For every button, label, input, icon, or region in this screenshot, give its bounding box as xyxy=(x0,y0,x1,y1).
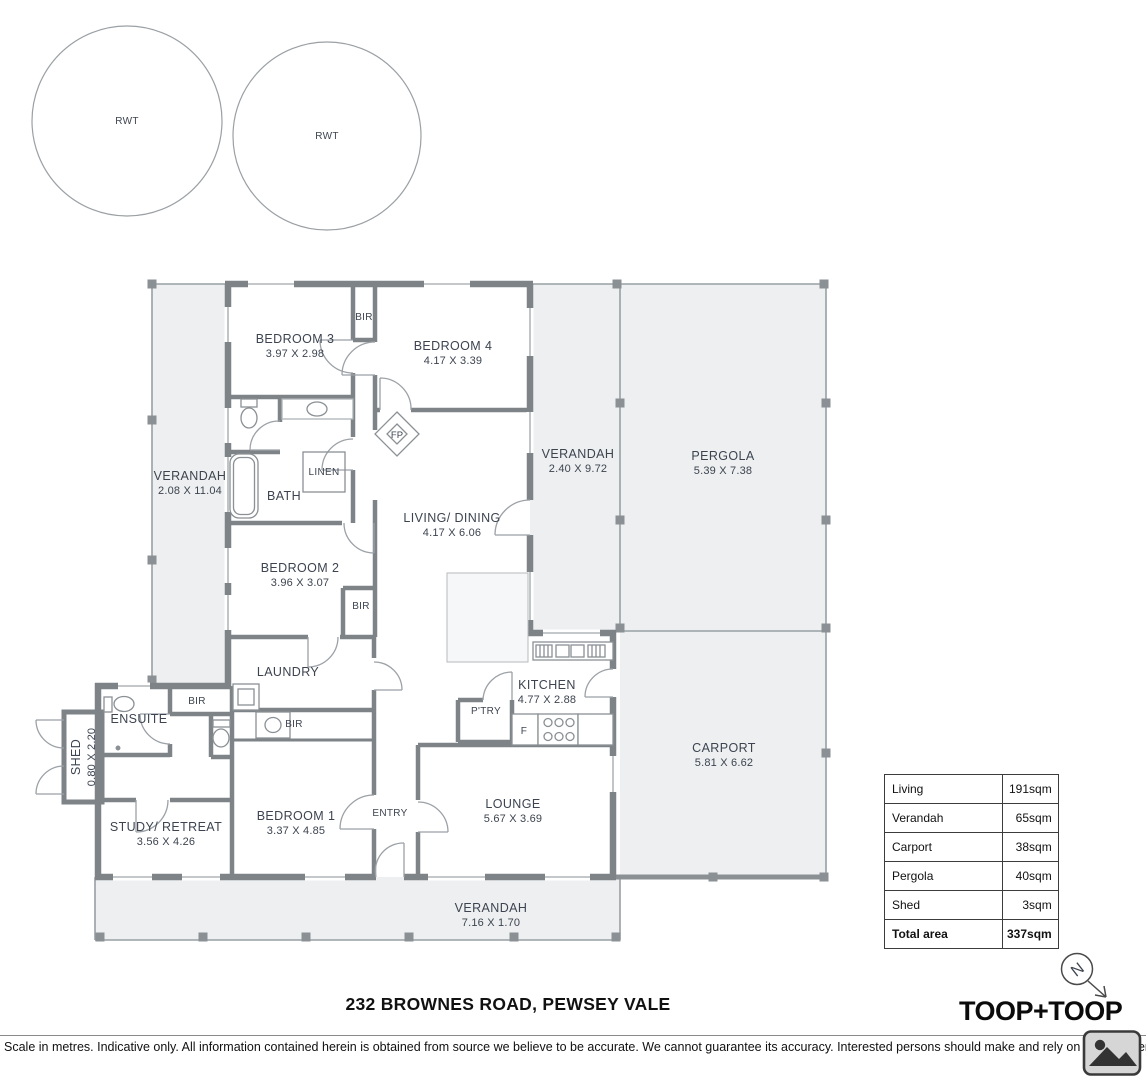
total-area-value: 337sqm xyxy=(1003,920,1059,949)
dims-pergola: 5.39 X 7.38 xyxy=(694,465,752,477)
dims-bedroom1: 3.37 X 4.85 xyxy=(267,825,325,837)
table-row: Living191sqm xyxy=(885,775,1059,804)
windows xyxy=(113,281,617,881)
label-carport: CARPORT xyxy=(692,741,756,755)
label-verandah-mid: VERANDAH xyxy=(542,447,615,461)
dims-study: 3.56 X 4.26 xyxy=(137,836,195,848)
area-label: Pergola xyxy=(885,862,1003,891)
dims-verandah-bottom: 7.16 X 1.70 xyxy=(462,917,520,929)
linen-closet xyxy=(303,452,345,492)
agency-logo: TOOP+TOOP xyxy=(959,996,1122,1027)
label-ensuite: ENSUITE xyxy=(111,712,168,726)
room-labels: VERANDAH 2.08 X 11.04 BEDROOM 3 3.97 X 2… xyxy=(69,312,756,929)
door-swings xyxy=(36,340,613,877)
label-bedroom3: BEDROOM 3 xyxy=(256,332,335,346)
vanity-counter xyxy=(282,399,353,419)
label-living-dining: LIVING/ DINING xyxy=(403,511,500,525)
shower-drain-icon xyxy=(116,746,120,750)
label-entry: ENTRY xyxy=(372,808,407,819)
area-label: Carport xyxy=(885,833,1003,862)
label-pantry: P'TRY xyxy=(471,706,501,717)
table-row: Shed3sqm xyxy=(885,891,1059,920)
toilet-icon xyxy=(241,399,257,428)
label-bedroom2: BEDROOM 2 xyxy=(261,561,340,575)
label-study: STUDY/ RETREAT xyxy=(110,820,222,834)
dims-bedroom3: 3.97 X 2.98 xyxy=(266,348,324,360)
north-arrow-icon: N xyxy=(1062,954,1107,998)
verandah-posts xyxy=(96,280,831,942)
label-verandah-bottom: VERANDAH xyxy=(455,901,528,915)
outdoor-areas xyxy=(95,284,826,940)
dims-bedroom2: 3.96 X 3.07 xyxy=(271,577,329,589)
label-bir-hall: BIR xyxy=(188,696,206,707)
dims-carport: 5.81 X 6.62 xyxy=(695,757,753,769)
area-value: 40sqm xyxy=(1003,862,1059,891)
fixtures xyxy=(104,399,613,750)
shed-structure xyxy=(64,712,102,802)
area-label: Verandah xyxy=(885,804,1003,833)
label-kitchen: KITCHEN xyxy=(518,678,576,692)
basin-icon xyxy=(307,402,327,416)
label-fireplace: FP xyxy=(391,430,403,441)
dims-shed: 0.80 X 2.20 xyxy=(86,728,98,786)
sink-bench xyxy=(533,642,613,660)
table-row-total: Total area337sqm xyxy=(885,920,1059,949)
label-bedroom4: BEDROOM 4 xyxy=(414,339,493,353)
area-value: 38sqm xyxy=(1003,833,1059,862)
area-value: 191sqm xyxy=(1003,775,1059,804)
house-footprint xyxy=(98,284,616,877)
area-label: Shed xyxy=(885,891,1003,920)
dims-living-dining: 4.17 X 6.06 xyxy=(423,527,481,539)
tank-label: RWT xyxy=(315,131,339,142)
label-fridge: F xyxy=(521,726,527,737)
label-bath: BATH xyxy=(267,489,301,503)
dims-verandah-mid: 2.40 X 9.72 xyxy=(549,463,607,475)
bed1-cabinet-icon xyxy=(256,712,290,738)
interior-walls xyxy=(98,284,613,877)
label-laundry: LAUNDRY xyxy=(257,665,320,679)
label-bir-bed3: BIR xyxy=(355,312,373,323)
area-value: 3sqm xyxy=(1003,891,1059,920)
table-row: Carport38sqm xyxy=(885,833,1059,862)
label-linen: LINEN xyxy=(309,467,340,478)
exterior-walls xyxy=(95,284,616,877)
label-bir-bed1: BIR xyxy=(285,719,303,730)
label-bir-bed2: BIR xyxy=(352,601,370,612)
table-row: Pergola40sqm xyxy=(885,862,1059,891)
tank-label: RWT xyxy=(115,116,139,127)
toilet-icon xyxy=(104,697,134,713)
kitchen-island xyxy=(447,573,528,662)
table-row: Verandah65sqm xyxy=(885,804,1059,833)
rainwater-tanks: RWT RWT xyxy=(32,26,421,230)
area-table: Living191sqm Verandah65sqm Carport38sqm … xyxy=(884,774,1059,949)
bathtub-icon xyxy=(230,454,258,518)
page-title: 232 BROWNES ROAD, PEWSEY VALE xyxy=(308,994,708,1015)
dims-verandah-left: 2.08 X 11.04 xyxy=(158,485,222,497)
lower-bench xyxy=(512,714,613,745)
dims-lounge: 5.67 X 3.69 xyxy=(484,813,542,825)
total-area-label: Total area xyxy=(885,920,1003,949)
floorplan-page: Living191sqm Verandah65sqm Carport38sqm … xyxy=(0,0,1146,1080)
disclaimer-text: Scale in metres. Indicative only. All in… xyxy=(0,1035,1146,1054)
label-shed: SHED xyxy=(69,739,83,775)
label-pergola: PERGOLA xyxy=(691,449,754,463)
dims-bedroom4: 4.17 X 3.39 xyxy=(424,355,482,367)
label-bedroom1: BEDROOM 1 xyxy=(257,809,336,823)
dims-kitchen: 4.77 X 2.88 xyxy=(518,694,576,706)
area-value: 65sqm xyxy=(1003,804,1059,833)
toilet-icon xyxy=(213,720,230,747)
label-lounge: LOUNGE xyxy=(485,797,540,811)
laundry-trough-icon xyxy=(233,684,259,710)
outdoor-boundaries xyxy=(95,284,826,940)
label-verandah-left: VERANDAH xyxy=(154,469,227,483)
area-label: Living xyxy=(885,775,1003,804)
fireplace-icon xyxy=(375,412,419,456)
compass-letter: N xyxy=(1068,960,1088,981)
